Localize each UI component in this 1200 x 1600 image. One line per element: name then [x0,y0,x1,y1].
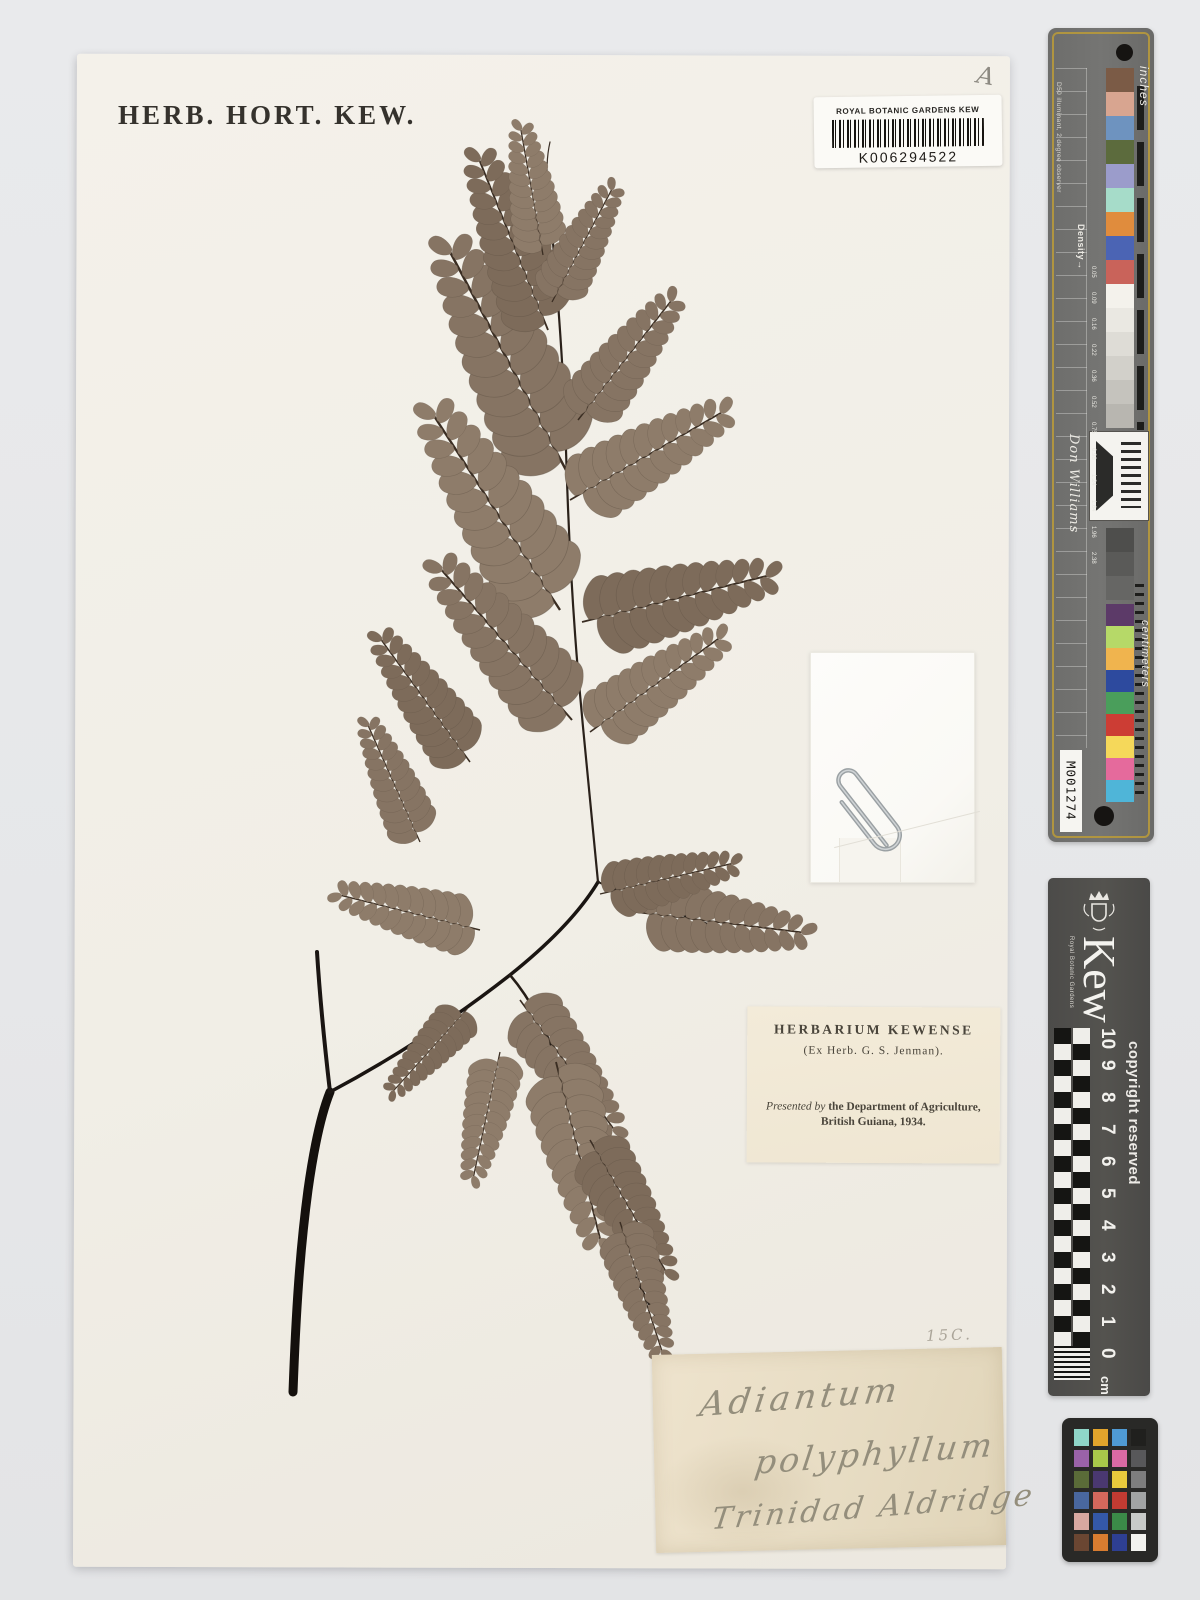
color-swatch [1112,1534,1127,1551]
color-swatch [1106,332,1134,356]
digitised-herbarium-photo: { "sheet": { "stamp": "HERB. HORT. KEW."… [0,0,1200,1600]
pencil-annotation: 15C. [926,1325,973,1345]
barcode-label: ROYAL BOTANIC GARDENS KEW K006294522 [814,95,1003,169]
color-swatch [1106,576,1134,600]
handwritten-genus: Adiantum [697,1370,903,1425]
color-swatch [1106,356,1134,380]
color-swatch [1074,1492,1089,1509]
color-swatch [1093,1513,1108,1530]
label-title: HERBARIUM KEWENSE [747,1021,1000,1038]
color-swatch [1074,1471,1089,1488]
color-patch-column-top [1106,68,1134,428]
density-label: Density→ [1076,224,1086,270]
resolution-wedge-icon [1096,441,1113,511]
label-subtitle: (Ex Herb. G. S. Jenman). [747,1044,1000,1057]
color-swatch [1106,92,1134,116]
color-patch-column-bottom [1106,604,1134,802]
color-swatch [1131,1492,1146,1509]
tick-label: 1 [1094,1316,1120,1348]
color-swatch [1106,116,1134,140]
density-values: 0.050.090.160.220.360.520.750.981.241.64… [1090,266,1096,578]
strip-id-label: M001274 [1060,750,1082,832]
copyright-text: copyright reserved [1125,1041,1142,1185]
tick-label: 0.75 [1090,422,1096,448]
herbarium-stamp: HERB. HORT. KEW. [118,100,416,131]
color-swatch [1131,1513,1146,1530]
color-swatch [1074,1534,1089,1551]
tick-label: 9 [1094,1060,1120,1092]
color-swatch [1106,736,1134,758]
color-swatch [1106,604,1134,626]
paperclip-icon [801,737,940,879]
gray-patch-column [1106,528,1134,600]
color-swatch [1106,284,1134,308]
color-swatch [1106,692,1134,714]
color-swatch [1131,1471,1146,1488]
color-swatch [1131,1450,1146,1467]
color-swatch [1106,714,1134,736]
handwritten-species: polyphyllum [752,1425,997,1482]
cm-scale-icon [1135,584,1144,798]
barcode-icon [832,118,984,148]
color-swatch [1106,308,1134,332]
tick-label: 7 [1094,1124,1120,1156]
centimeters-label: centimeters [1139,620,1151,688]
color-swatch [1106,758,1134,780]
color-swatch [1106,670,1134,692]
tick-label: 0.09 [1090,292,1096,318]
determination-label: Adiantum polyphyllum Trinidad Aldridge [652,1347,1006,1553]
calibration-strip: inches centimeters Density→ D50 illumina… [1048,28,1154,842]
tick-label: 0.36 [1090,370,1096,396]
tick-label: 4 [1094,1220,1120,1252]
color-swatch [1106,188,1134,212]
color-swatch [1112,1492,1127,1509]
color-swatch [1112,1471,1127,1488]
signature-text: Don Williams [1066,434,1081,533]
tick-label: 1.24 [1090,474,1096,500]
color-swatch [1093,1450,1108,1467]
color-swatch [1106,626,1134,648]
label-origin-line: British Guiana, 1934. [747,1115,1000,1128]
barcode-number: K006294522 [814,148,1002,167]
kew-ruler: Royal Botanic Gardens Kew 012345678910 c… [1048,878,1150,1396]
color-swatch [1093,1471,1108,1488]
handwritten-locality-collector: Trinidad Aldridge [710,1478,1038,1537]
color-swatch [1074,1513,1089,1530]
tick-label: 0.52 [1090,396,1096,422]
specimen-capsule [810,652,975,883]
color-swatch [1106,528,1134,552]
ruler-mm-ticks [1054,1346,1090,1380]
tick-label: 3 [1094,1252,1120,1284]
herbarium-label: HERBARIUM KEWENSE (Ex Herb. G. S. Jenman… [747,1006,1001,1163]
label-presented-line: Presented by the Department of Agricultu… [747,1100,1000,1113]
color-swatch [1106,552,1134,576]
registration-dot-bottom [1094,806,1114,826]
tick-label: 2 [1094,1284,1120,1316]
ruler-unit: cm [1098,1376,1113,1395]
tick-label: 5 [1094,1188,1120,1220]
color-swatch [1131,1534,1146,1551]
color-swatch [1074,1450,1089,1467]
resolution-target [1090,432,1148,520]
color-swatch [1093,1429,1108,1446]
color-swatch [1106,212,1134,236]
tick-label: 8 [1094,1092,1120,1124]
color-swatch [1131,1429,1146,1446]
color-swatch [1106,380,1134,404]
tick-label: 10 [1094,1028,1120,1060]
color-swatch [1112,1429,1127,1446]
tick-label: 1.64 [1090,500,1096,526]
kew-brand: Royal Botanic Gardens Kew [1068,936,1122,1023]
tick-label: 0.98 [1090,448,1096,474]
density-arrow-icon: → [1076,260,1086,270]
color-checker-card [1062,1418,1158,1562]
color-swatch [1106,68,1134,92]
color-swatch [1106,236,1134,260]
color-swatch [1112,1450,1127,1467]
color-swatch [1106,140,1134,164]
illuminant-note: D50 illuminant, 2 degree observer [1055,82,1062,193]
inches-label: inches [1137,66,1151,107]
color-swatch [1106,404,1134,428]
color-swatch [1106,648,1134,670]
tick-label: 0.05 [1090,266,1096,292]
kew-crest-icon [1079,888,1119,934]
color-swatch [1074,1429,1089,1446]
color-swatch [1093,1492,1108,1509]
color-swatch [1093,1534,1108,1551]
resolution-bars-icon [1121,442,1141,508]
kew-brand-word: Kew [1076,936,1122,1023]
color-swatch [1106,780,1134,802]
tick-label: 6 [1094,1156,1120,1188]
color-swatch [1112,1513,1127,1530]
registration-dot-top [1116,44,1133,61]
ruler-checkerboard [1054,1028,1090,1380]
tick-label: 0.16 [1090,318,1096,344]
tick-label: 1.96 [1090,526,1096,552]
ruler-numbers: 012345678910 [1094,1028,1120,1380]
tick-label: 2.38 [1090,552,1096,578]
inch-scale-icon [1137,86,1144,430]
tick-label: 0.22 [1090,344,1096,370]
institution-name: ROYAL BOTANIC GARDENS KEW [814,105,1002,117]
color-swatch [1106,164,1134,188]
color-swatch [1106,260,1134,284]
